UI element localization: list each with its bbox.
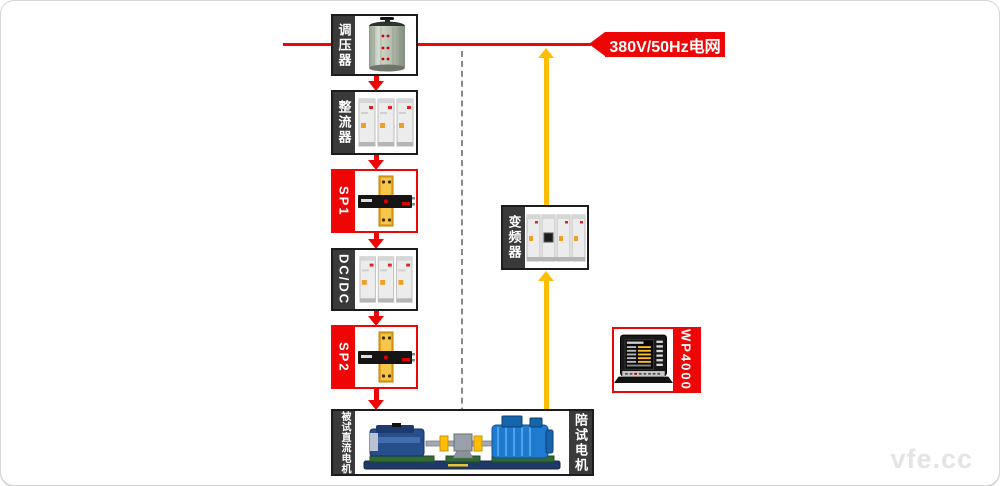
analyzer-label: WP4000: [680, 329, 693, 391]
arrow-regulator-to-rectifier: [368, 76, 384, 91]
inverter-sidebar: 变频器: [503, 207, 525, 268]
analyzer-box: WP4000: [612, 327, 701, 393]
watermark: vfe.cc: [890, 444, 973, 475]
sp1-power-sensor-illustration: [356, 174, 416, 228]
motor-bench-box: 被试直流电机: [331, 409, 594, 476]
grid-feed-arrowhead-icon: [589, 32, 605, 56]
dcdc-box: DC/DC: [331, 248, 418, 311]
rectifier-label: 整流器: [338, 100, 351, 145]
motor-test-bench-illustration: [356, 413, 568, 473]
dcdc-cabinets-illustration: [358, 254, 414, 306]
tested-motor-label: 被试直流电机: [339, 411, 349, 474]
analyzer-sidebar: WP4000: [673, 329, 699, 391]
regulator-box: 调压器: [331, 14, 418, 76]
arrow-sp2-to-motor: [368, 387, 384, 410]
wp4000-analyzer-illustration: [614, 332, 673, 388]
sp1-sidebar: SP1: [333, 171, 355, 231]
drive-motor-label: 陪试电机: [574, 413, 587, 473]
inverter-label: 变频器: [508, 215, 521, 260]
arrow-dcdc-to-sp2: [368, 311, 384, 326]
feedback-arrow-inverter-to-grid: [538, 48, 554, 205]
arrow-up-icon: [538, 48, 554, 58]
sp1-label: SP1: [338, 186, 351, 217]
sp2-label: SP2: [338, 342, 351, 373]
dcdc-label: DC/DC: [338, 254, 351, 305]
arrow-sp1-to-dcdc: [368, 233, 384, 249]
inverter-cabinets-illustration: [526, 211, 586, 265]
sp2-power-sensor-illustration: [356, 330, 416, 384]
tested-motor-sidebar: 被试直流电机: [333, 411, 355, 474]
regulator-sidebar: 调压器: [333, 16, 355, 74]
mains-line-left-segment: [283, 43, 331, 46]
drive-motor-sidebar: 陪试电机: [569, 411, 592, 474]
arrow-rectifier-to-sp1: [368, 155, 384, 170]
grid-voltage-label: 380V/50Hz电网: [605, 32, 725, 57]
sp2-sidebar: SP2: [333, 327, 355, 387]
inverter-box: 变频器: [501, 205, 589, 270]
feedback-arrow-motor-to-inverter: [538, 271, 554, 411]
arrow-up-icon: [538, 271, 554, 281]
sp2-box: SP2: [331, 325, 418, 389]
rectifier-box: 整流器: [331, 90, 418, 155]
dcdc-sidebar: DC/DC: [333, 250, 355, 309]
rectifier-sidebar: 整流器: [333, 92, 355, 153]
voltage-regulator-illustration: [357, 17, 415, 73]
regulator-label: 调压器: [338, 23, 351, 68]
diagram-canvas: 380V/50Hz电网 调压器: [0, 0, 1000, 486]
sp1-box: SP1: [331, 169, 418, 233]
rectifier-cabinets-illustration: [358, 96, 414, 150]
mains-line-right-segment: [418, 43, 591, 46]
